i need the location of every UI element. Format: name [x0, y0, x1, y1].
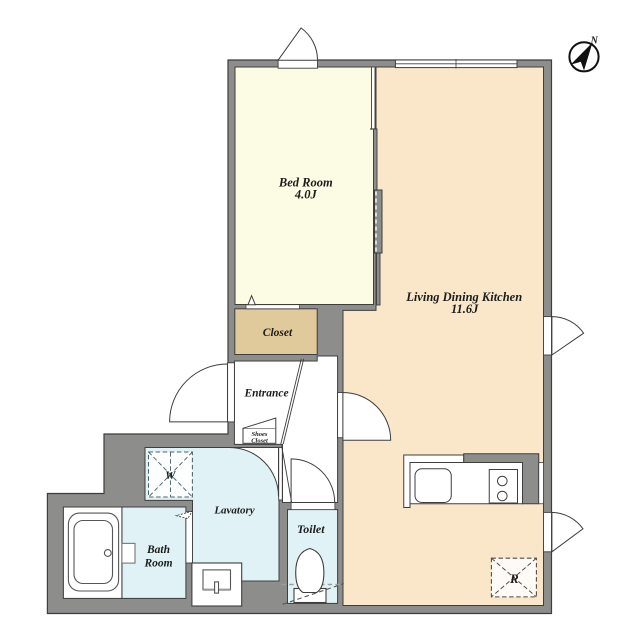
svg-text:Room: Room [143, 557, 172, 569]
svg-text:Toilet: Toilet [297, 522, 325, 536]
svg-text:Closet: Closet [263, 327, 293, 339]
svg-text:Lavatory: Lavatory [213, 505, 254, 517]
svg-text:4.0J: 4.0J [294, 188, 318, 202]
svg-text:W: W [165, 470, 176, 482]
svg-text:Closet: Closet [251, 437, 268, 444]
svg-text:R: R [509, 571, 519, 586]
svg-text:Entrance: Entrance [243, 388, 288, 400]
svg-text:N: N [590, 35, 599, 46]
svg-text:11.6J: 11.6J [451, 302, 479, 316]
svg-text:Bath: Bath [146, 544, 170, 556]
